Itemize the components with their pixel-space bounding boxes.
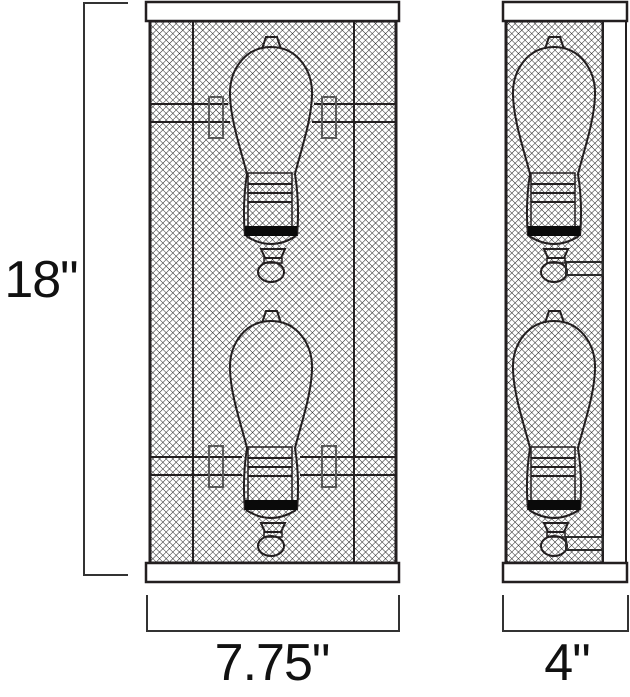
front-bottom-cap	[146, 563, 399, 582]
width-dimension-line	[147, 595, 399, 631]
front-view	[146, 2, 399, 582]
front-top-cap	[146, 2, 399, 21]
front-mesh-panel	[150, 21, 396, 563]
side-bottom-cap	[503, 563, 627, 582]
side-mesh-panel	[506, 21, 603, 563]
dimension-diagram: 18" 7.75" 4"	[0, 0, 630, 697]
depth-dimension-line	[503, 595, 628, 631]
fixture-drawing	[0, 0, 630, 697]
width-label: 7.75"	[152, 637, 392, 689]
side-view	[503, 2, 627, 582]
depth-label: 4"	[506, 637, 628, 689]
height-dimension-line	[84, 3, 128, 575]
height-label: 18"	[0, 254, 82, 306]
side-top-cap	[503, 2, 627, 21]
side-back-plate	[603, 21, 626, 563]
